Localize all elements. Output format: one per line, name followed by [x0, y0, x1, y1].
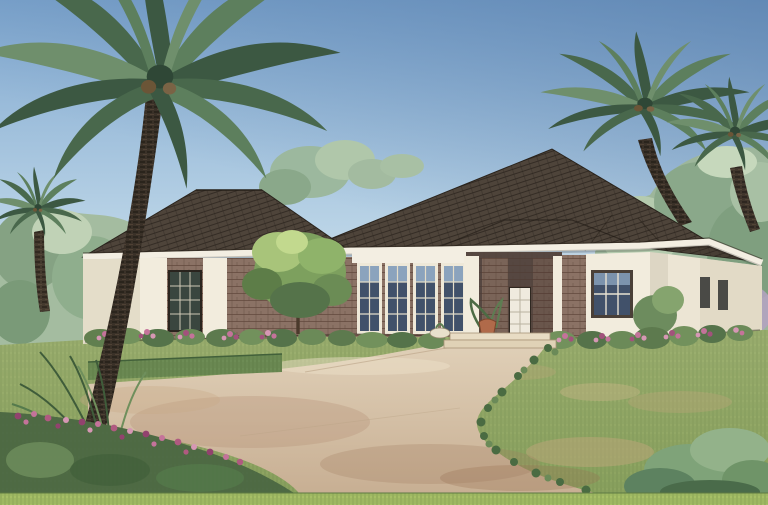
right-wing-window-1	[700, 277, 710, 308]
entry-column-left	[464, 256, 479, 337]
french-window-2	[385, 263, 410, 334]
front-door	[509, 287, 531, 336]
left-bay-wall	[140, 258, 270, 339]
left-bay-window	[168, 270, 202, 332]
window-bank	[352, 248, 470, 337]
house-rendering	[0, 0, 768, 505]
right-bay-window	[591, 270, 633, 318]
french-window-1	[357, 263, 382, 334]
french-window-4	[441, 263, 466, 334]
walk-planter-bowl	[430, 328, 450, 338]
illustration-canvas	[0, 0, 768, 505]
grass-strip-foreground	[0, 493, 768, 505]
right-wing-window-2	[718, 280, 728, 310]
french-window-3	[413, 263, 438, 334]
entry-porch	[464, 252, 564, 340]
dry-grass-patch	[526, 437, 654, 467]
